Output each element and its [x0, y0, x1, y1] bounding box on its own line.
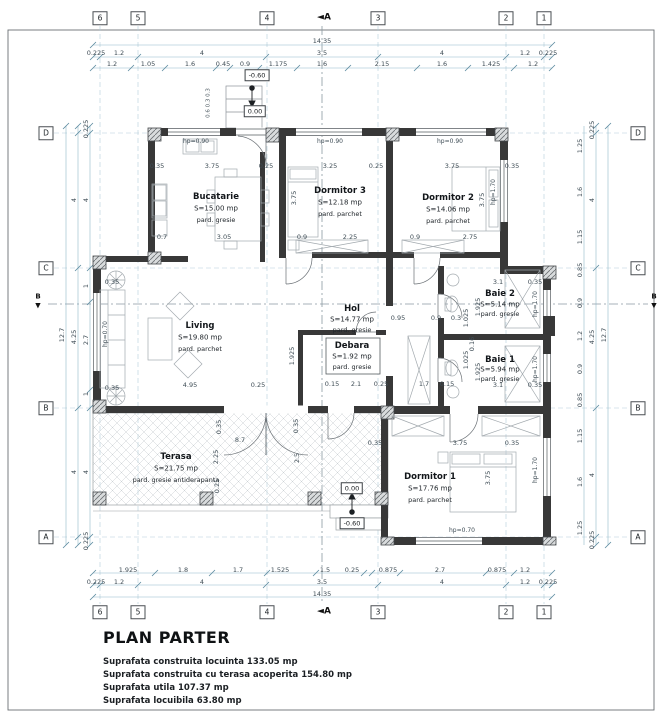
- surface-summary: Suprafata construita locuinta 133.05 mp …: [103, 656, 352, 708]
- terrace-area: [93, 413, 388, 530]
- surface-line: Suprafata utila 107.37 mp: [103, 682, 352, 695]
- floorplan-drawing: [0, 0, 671, 720]
- surface-line: Suprafata construita cu terasa acoperita…: [103, 669, 352, 682]
- plan-title: PLAN PARTER: [103, 628, 352, 647]
- surface-line: Suprafata locuibila 63.80 mp: [103, 695, 352, 708]
- entrance-steps: [226, 86, 262, 128]
- surface-line: Suprafata construita locuinta 133.05 mp: [103, 656, 352, 669]
- title-block: PLAN PARTER Suprafata construita locuint…: [103, 628, 352, 708]
- floorplan-page: 654321654321DCBADCBA◄A◄AB▼B▼BucatarieDor…: [0, 0, 671, 720]
- debara-label-box: [326, 338, 380, 374]
